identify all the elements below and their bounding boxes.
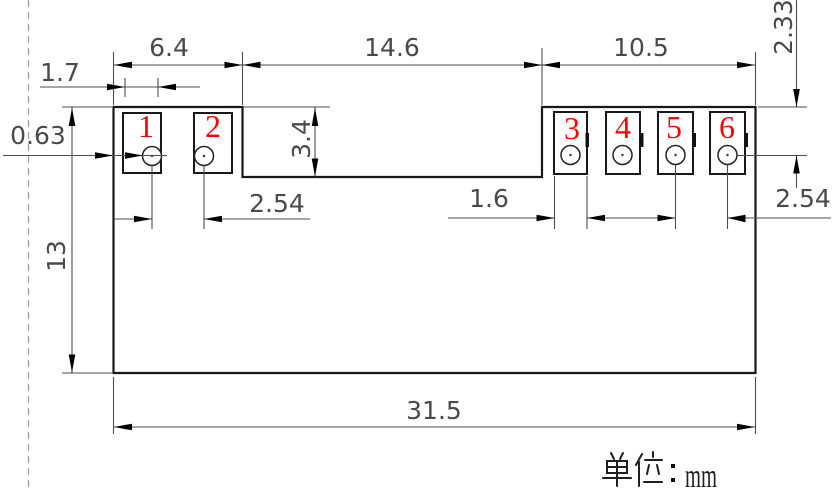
pad-2-number: 2 — [205, 108, 221, 144]
pad-5: 5 — [658, 109, 693, 174]
pad-1: 1 — [123, 108, 162, 173]
chinese-char-wei — [636, 452, 662, 486]
pad-1-number: 1 — [138, 108, 154, 144]
dim-span-middle-value: 14.6 — [364, 33, 420, 62]
dim-notch-height: 3.4 — [243, 107, 331, 177]
dim-pad-right-width: 1.6 — [448, 176, 676, 229]
pad-4-number: 4 — [615, 109, 631, 145]
pad-5-number: 5 — [666, 109, 682, 145]
pad-4: 4 — [606, 109, 640, 174]
dim-span-right-value: 10.5 — [613, 33, 669, 62]
dimension-drawing: 1 2 3 4 5 6 — [0, 0, 836, 490]
dim-pad-left-width-value: 1.7 — [40, 58, 80, 87]
dim-body-height-value: 13 — [42, 240, 71, 272]
pad-2: 2 — [194, 108, 232, 173]
dim-body-width-value: 31.5 — [406, 396, 462, 425]
units-value: mm — [685, 458, 717, 490]
dim-pad-right-width-value: 1.6 — [469, 184, 509, 213]
dim-right-pitch-value: 2.54 — [775, 184, 831, 213]
fullwidth-colon — [671, 464, 675, 482]
dim-pad-left-width: 1.7 — [40, 58, 200, 97]
dim-hole-edge-offset-value: 0.63 — [10, 121, 66, 150]
dim-body-width: 31.5 — [114, 377, 756, 434]
dim-span-left-value: 6.4 — [149, 33, 189, 62]
chinese-char-dan — [603, 453, 631, 486]
pad-3-number: 3 — [564, 110, 580, 146]
pad-6-number: 6 — [719, 109, 735, 145]
dim-notch-height-value: 3.4 — [287, 119, 316, 159]
dim-left-pitch: 2.54 — [114, 166, 311, 229]
dim-top-chain: 6.4 14.6 10.5 — [114, 33, 756, 105]
units-note: mm — [603, 452, 717, 490]
dim-hole-center-from-top-value: 2.33 — [769, 0, 798, 55]
dimension-drawing-page: 1 2 3 4 5 6 — [0, 0, 836, 490]
pad-6: 6 — [710, 109, 745, 174]
dim-hole-center-from-top: 2.33 — [737, 0, 807, 188]
dim-left-pitch-value: 2.54 — [249, 189, 305, 218]
pad-3: 3 — [554, 110, 587, 174]
